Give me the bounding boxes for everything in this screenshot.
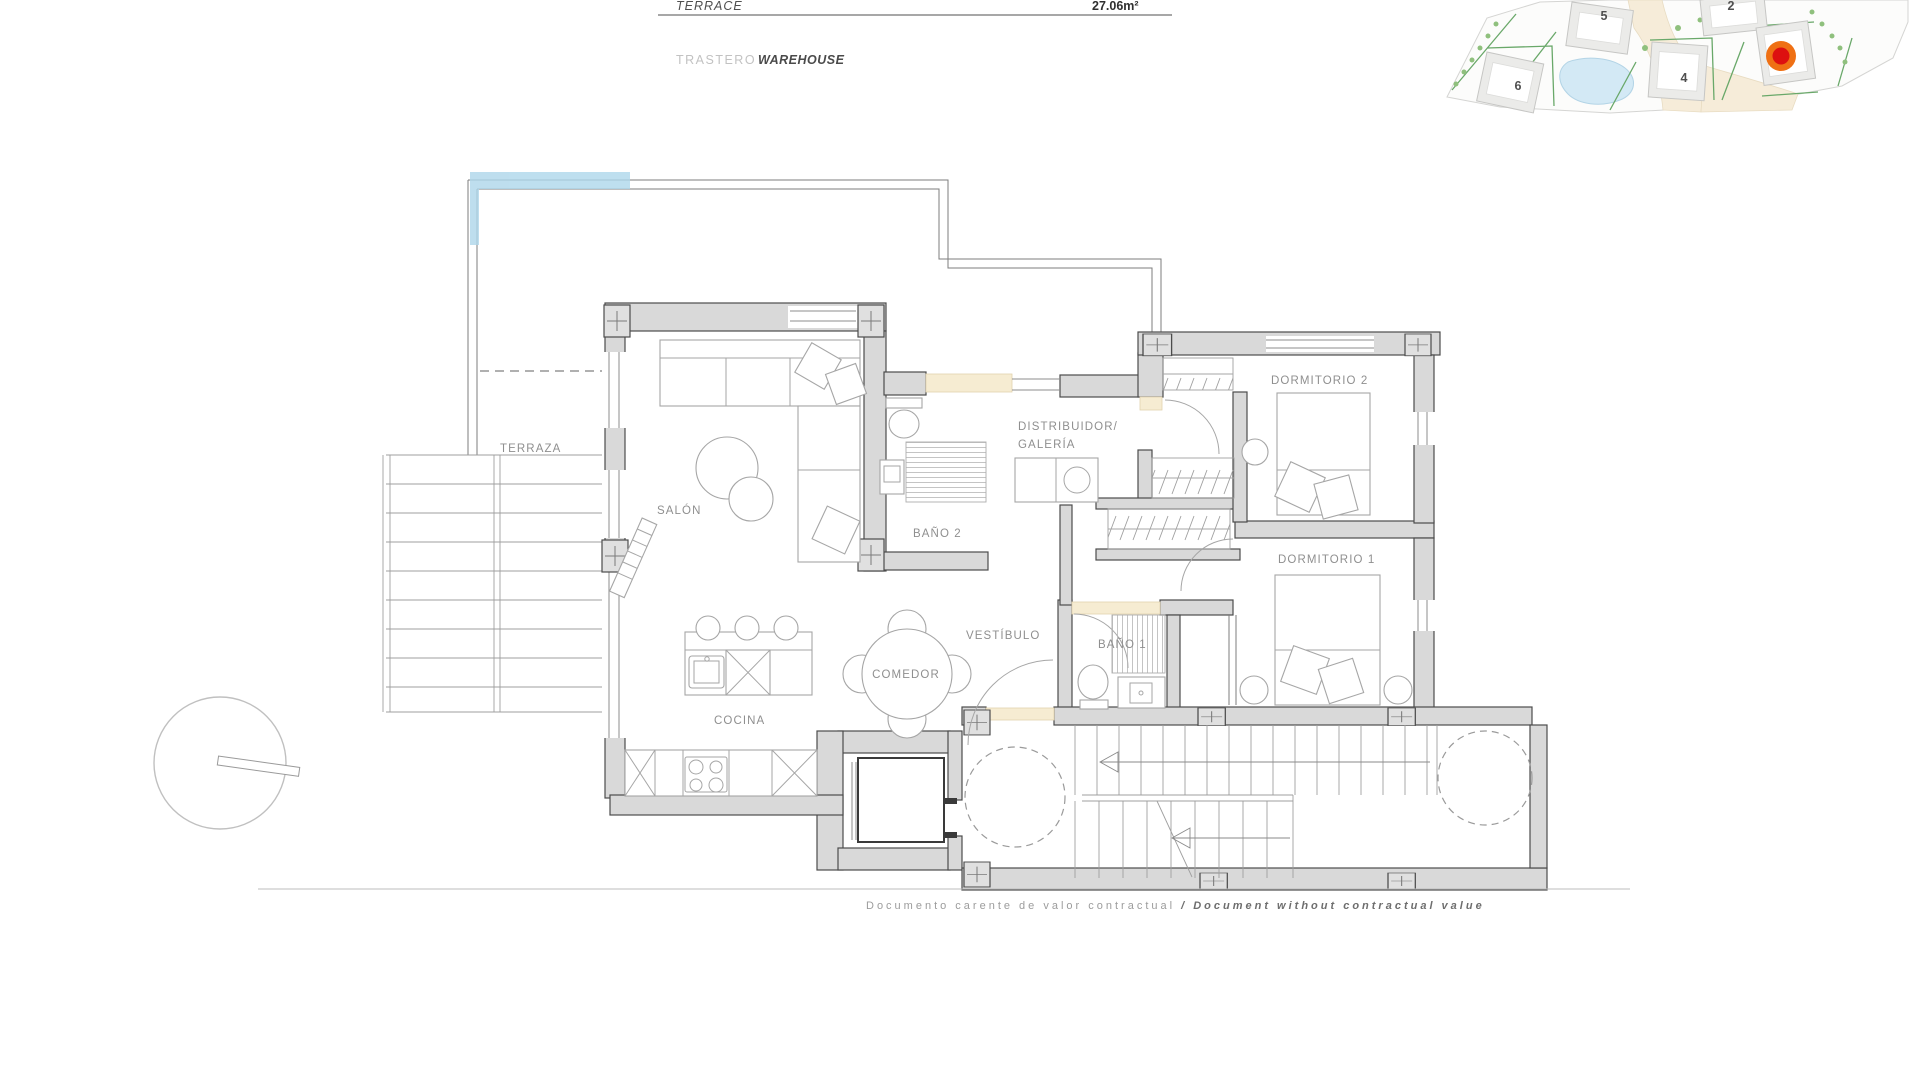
- sofa: [660, 340, 867, 562]
- label-distribuidor: DISTRIBUIDOR/: [1018, 421, 1118, 433]
- kitchen-island: [685, 616, 812, 695]
- footer: Documento carente de valor contractual /…: [258, 889, 1630, 912]
- label-comedor: COMEDOR: [872, 669, 940, 681]
- building-number-5: 5: [1601, 9, 1608, 23]
- bathroom1-fixtures: [1078, 615, 1165, 709]
- terrace-row-label: TERRACE: [676, 0, 743, 13]
- building-number-6: 6: [1515, 79, 1522, 93]
- communal-stairs: [1075, 725, 1437, 878]
- label-galeria: GALERÍA: [1018, 438, 1076, 451]
- building-number-2: 2: [1728, 0, 1735, 13]
- turning-circle-landing: [965, 747, 1065, 847]
- unit-location-marker: [1766, 41, 1796, 71]
- footer-disclaimer-en: / Document without contractual value: [1180, 900, 1485, 912]
- trastero-label: TRASTERO: [676, 53, 756, 67]
- area-table-header: TERRACE 27.06m² TRASTERO WAREHOUSE: [658, 0, 1172, 67]
- site-building-4: [1648, 42, 1708, 101]
- elevator: [852, 758, 957, 842]
- site-map: 5 2 6 4: [1447, 0, 1908, 113]
- svg-text:Documento carente de valor con: Documento carente de valor contractual /…: [866, 900, 1485, 912]
- floor-plan: TERRAZA SALÓN COCINA COMEDOR VESTÍBULO B…: [154, 172, 1547, 890]
- highlighted-edge: [470, 172, 630, 245]
- bathroom2-fixtures: [880, 398, 986, 502]
- bed-dormitorio-1: [1229, 575, 1412, 705]
- label-salon: SALÓN: [657, 504, 702, 517]
- footer-disclaimer-es: Documento carente de valor contractual: [866, 900, 1181, 912]
- label-bano2: BAÑO 2: [913, 527, 962, 540]
- warehouse-label: WAREHOUSE: [758, 53, 845, 67]
- label-vestibulo: VESTÍBULO: [966, 629, 1040, 642]
- label-bano1: BAÑO 1: [1098, 638, 1147, 651]
- bed-dormitorio-2: [1242, 393, 1370, 519]
- label-dormitorio1: DORMITORIO 1: [1278, 554, 1375, 566]
- label-dormitorio2: DORMITORIO 2: [1271, 375, 1368, 387]
- label-terraza: TERRAZA: [500, 443, 561, 455]
- tree-symbol: [154, 697, 300, 829]
- laundry-counter: [1015, 458, 1098, 502]
- coffee-tables: [696, 437, 773, 521]
- building-number-4: 4: [1681, 71, 1688, 85]
- floorplan-sheet: TERRACE 27.06m² TRASTERO WAREHOUSE: [0, 0, 1920, 1080]
- terrace-row-area: 27.06m²: [1092, 0, 1139, 13]
- kitchen-counter: [625, 750, 817, 796]
- exterior-stairs: [383, 455, 602, 712]
- label-cocina: COCINA: [714, 715, 765, 727]
- turning-circle-stairwell: [1438, 731, 1532, 825]
